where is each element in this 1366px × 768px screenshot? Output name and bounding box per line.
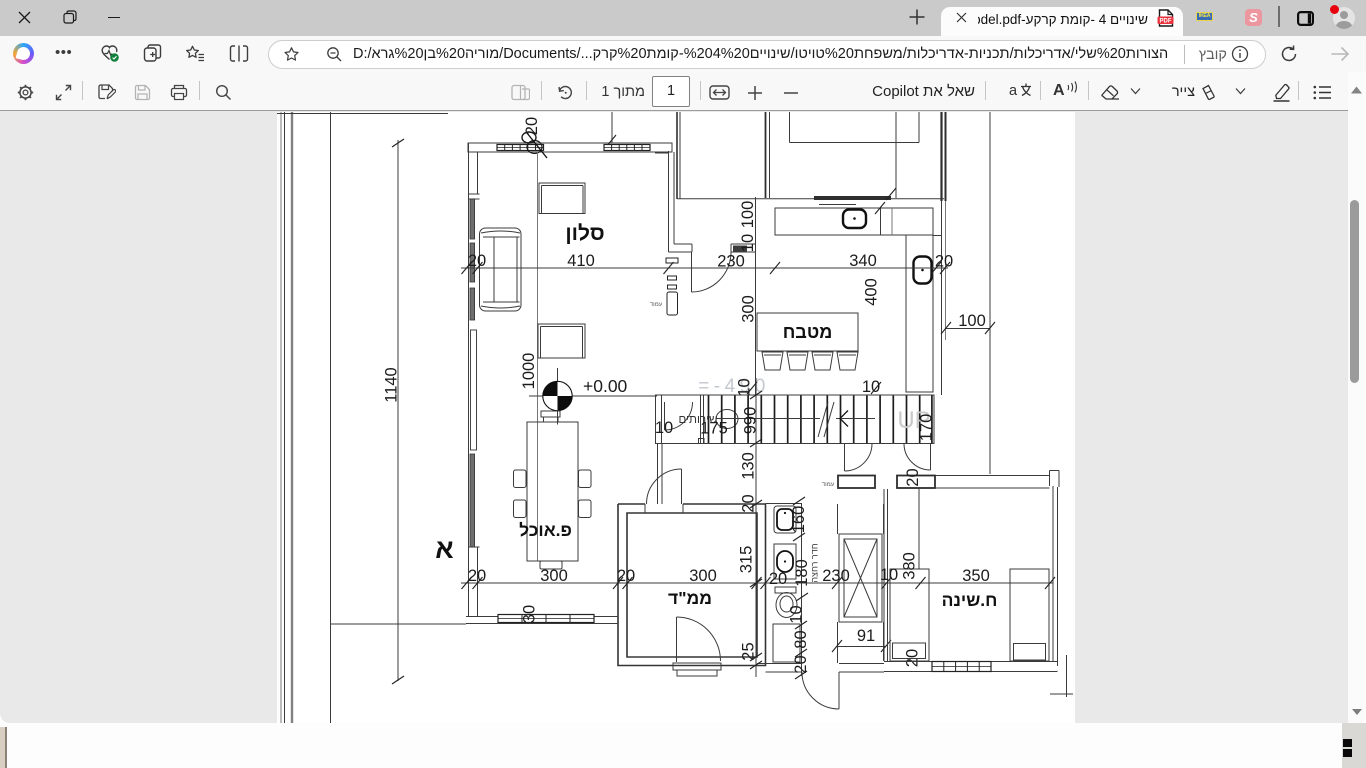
svg-text:ממ"ד: ממ"ד <box>668 588 712 608</box>
svg-text:990: 990 <box>742 407 760 435</box>
svg-text:מטבח: מטבח <box>783 322 833 342</box>
svg-text:350: 350 <box>962 567 990 585</box>
svg-text:20: 20 <box>468 567 486 585</box>
svg-text:20: 20 <box>617 567 635 585</box>
svg-text:PDF: PDF <box>1160 18 1172 24</box>
svg-text:380: 380 <box>901 552 919 580</box>
svg-text:175: 175 <box>700 420 728 438</box>
svg-text:230: 230 <box>822 567 850 585</box>
svg-text:20: 20 <box>468 252 486 270</box>
svg-text:300: 300 <box>740 295 758 323</box>
svg-text:30: 30 <box>521 605 539 623</box>
svg-text:25: 25 <box>740 642 758 660</box>
svg-text:חדר רחצה: חדר רחצה <box>810 543 820 582</box>
svg-text:20: 20 <box>904 468 922 486</box>
svg-text:410: 410 <box>567 252 595 270</box>
svg-text:400: 400 <box>863 278 881 306</box>
svg-text:ח.שינה: ח.שינה <box>942 590 998 610</box>
svg-text:1000: 1000 <box>520 353 538 390</box>
svg-text:10: 10 <box>788 605 806 623</box>
svg-text:170: 170 <box>918 414 936 442</box>
svg-text:340: 340 <box>849 252 877 270</box>
svg-text:10: 10 <box>655 419 673 437</box>
svg-text:עמוד: עמוד <box>822 482 835 488</box>
svg-text:20: 20 <box>935 253 953 271</box>
svg-text:10: 10 <box>862 378 880 396</box>
svg-text:סלון: סלון <box>565 222 604 245</box>
svg-text:1140: 1140 <box>383 367 401 402</box>
svg-text:300: 300 <box>689 567 717 585</box>
svg-text:80: 80 <box>792 630 810 648</box>
svg-text:91: 91 <box>857 627 875 645</box>
svg-text:10: 10 <box>739 234 757 252</box>
svg-text:20: 20 <box>769 570 787 588</box>
svg-text:230: 230 <box>717 253 745 271</box>
svg-text:=-490: =-490 <box>698 376 770 397</box>
svg-text:20: 20 <box>792 655 810 673</box>
svg-text:160: 160 <box>790 506 808 534</box>
svg-text:20: 20 <box>740 494 758 512</box>
svg-text:+0.00: +0.00 <box>583 376 628 396</box>
svg-text:פ.אוכל: פ.אוכל <box>519 520 572 540</box>
svg-text:100: 100 <box>739 201 757 229</box>
svg-text:315: 315 <box>738 546 756 574</box>
svg-text:130: 130 <box>740 452 758 480</box>
svg-text:10: 10 <box>880 566 898 584</box>
svg-text:10: 10 <box>736 378 754 396</box>
svg-text:עמוד: עמוד <box>650 302 663 308</box>
svg-text:100: 100 <box>958 312 986 330</box>
svg-text:א: א <box>435 534 453 564</box>
svg-text:300: 300 <box>540 567 568 585</box>
